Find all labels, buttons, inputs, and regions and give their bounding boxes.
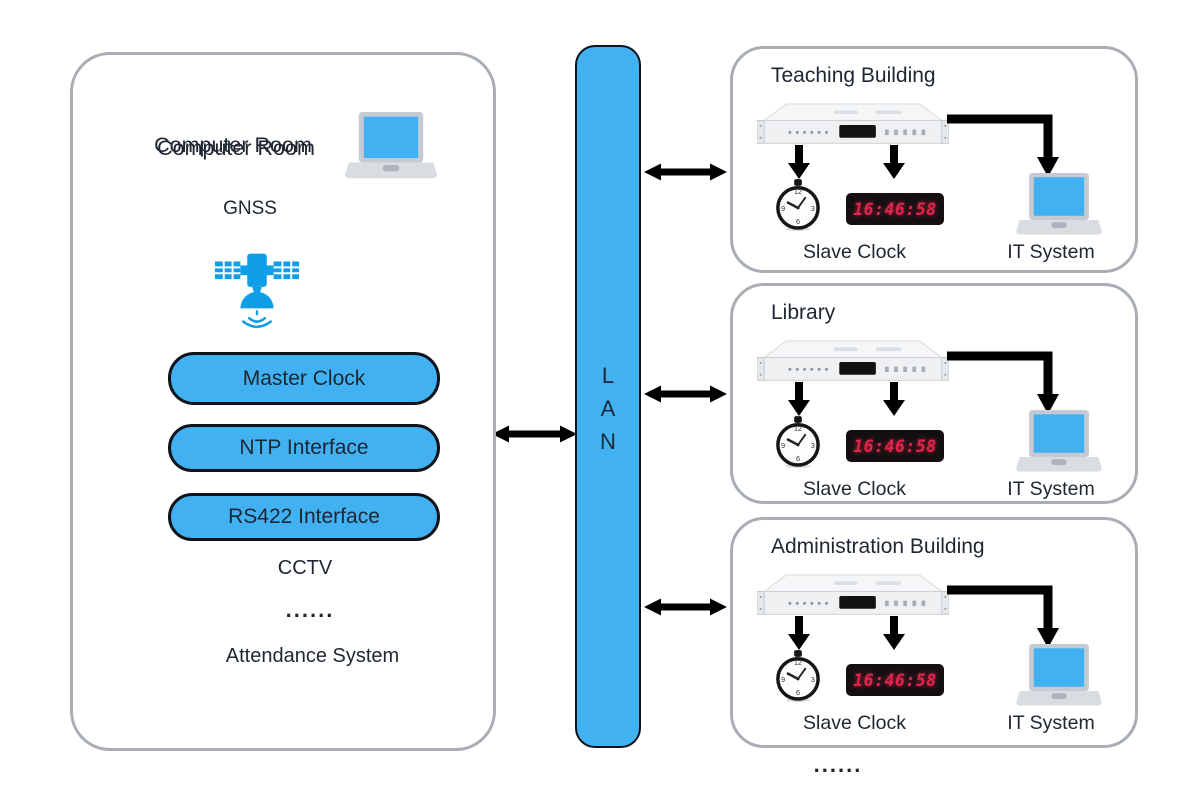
lan-letter-n: N bbox=[577, 425, 639, 458]
analog-clock-icon bbox=[775, 179, 821, 231]
laptop-icon bbox=[1016, 173, 1102, 238]
building-title: Library bbox=[771, 301, 835, 325]
slave-clock-label: Slave Clock bbox=[767, 712, 942, 735]
down-arrow-icon bbox=[882, 145, 906, 179]
rs422-interface-node: RS422 Interface bbox=[168, 493, 440, 541]
it-system-label: IT System bbox=[981, 241, 1121, 264]
gnss-label: GNSS bbox=[200, 198, 300, 220]
lan-letter-a: A bbox=[577, 392, 639, 425]
arrow-lan-to-library bbox=[644, 386, 727, 403]
attendance-system-label: Attendance System bbox=[185, 645, 440, 668]
arrow-computer-room-to-lan bbox=[492, 426, 577, 443]
more-buildings-indicator: ...... bbox=[798, 752, 878, 778]
down-arrow-icon bbox=[787, 382, 811, 416]
satellite-icon bbox=[213, 238, 301, 328]
analog-clock-icon bbox=[775, 416, 821, 468]
ntp-interface-node: NTP Interface bbox=[168, 424, 440, 472]
arrow-lan-to-teaching-building bbox=[644, 164, 727, 181]
lan-letter-l: L bbox=[577, 359, 639, 392]
elbow-arrow-icon bbox=[945, 582, 1067, 650]
cctv-label: CCTV bbox=[245, 557, 365, 580]
laptop-icon bbox=[1016, 410, 1102, 475]
diagram-canvas: Computer Room Computer Room Computer Roo… bbox=[0, 0, 1200, 800]
building-title: Teaching Building bbox=[771, 64, 936, 88]
administration-building-panel: Administration Building 16:46:58 Slave C… bbox=[730, 517, 1138, 748]
teaching-building-panel: Teaching Building 16:46:58 Slave Clock I… bbox=[730, 46, 1138, 273]
digital-time: 16:46:58 bbox=[853, 437, 936, 456]
down-arrow-icon bbox=[882, 616, 906, 650]
elbow-arrow-icon bbox=[945, 111, 1067, 179]
digital-time: 16:46:58 bbox=[853, 671, 936, 690]
analog-clock-icon bbox=[775, 650, 821, 702]
slave-clock-label: Slave Clock bbox=[767, 478, 942, 501]
building-title: Administration Building bbox=[771, 535, 985, 559]
lan-bus: L A N bbox=[575, 45, 641, 748]
rack-server-icon bbox=[757, 572, 949, 620]
library-panel: Library 16:46:58 Slave Clock IT System bbox=[730, 283, 1138, 504]
computer-room-title-label: Computer Room bbox=[113, 133, 353, 158]
digital-clock-display: 16:46:58 bbox=[846, 430, 944, 462]
lan-label: L A N bbox=[577, 359, 639, 458]
elbow-arrow-icon bbox=[945, 348, 1067, 416]
rack-server-icon bbox=[757, 338, 949, 386]
it-system-label: IT System bbox=[981, 478, 1121, 501]
digital-time: 16:46:58 bbox=[853, 200, 936, 219]
down-arrow-icon bbox=[882, 382, 906, 416]
digital-clock-display: 16:46:58 bbox=[846, 193, 944, 225]
laptop-icon bbox=[1016, 644, 1102, 709]
slave-clock-label: Slave Clock bbox=[767, 241, 942, 264]
down-arrow-icon bbox=[787, 616, 811, 650]
digital-clock-display: 16:46:58 bbox=[846, 664, 944, 696]
rack-server-icon bbox=[757, 101, 949, 149]
it-system-label: IT System bbox=[981, 712, 1121, 735]
laptop-icon bbox=[345, 112, 437, 182]
arrow-lan-to-administration-building bbox=[644, 599, 727, 616]
down-arrow-icon bbox=[787, 145, 811, 179]
master-clock-node: Master Clock bbox=[168, 352, 440, 405]
more-peripherals-indicator: ...... bbox=[250, 597, 370, 623]
